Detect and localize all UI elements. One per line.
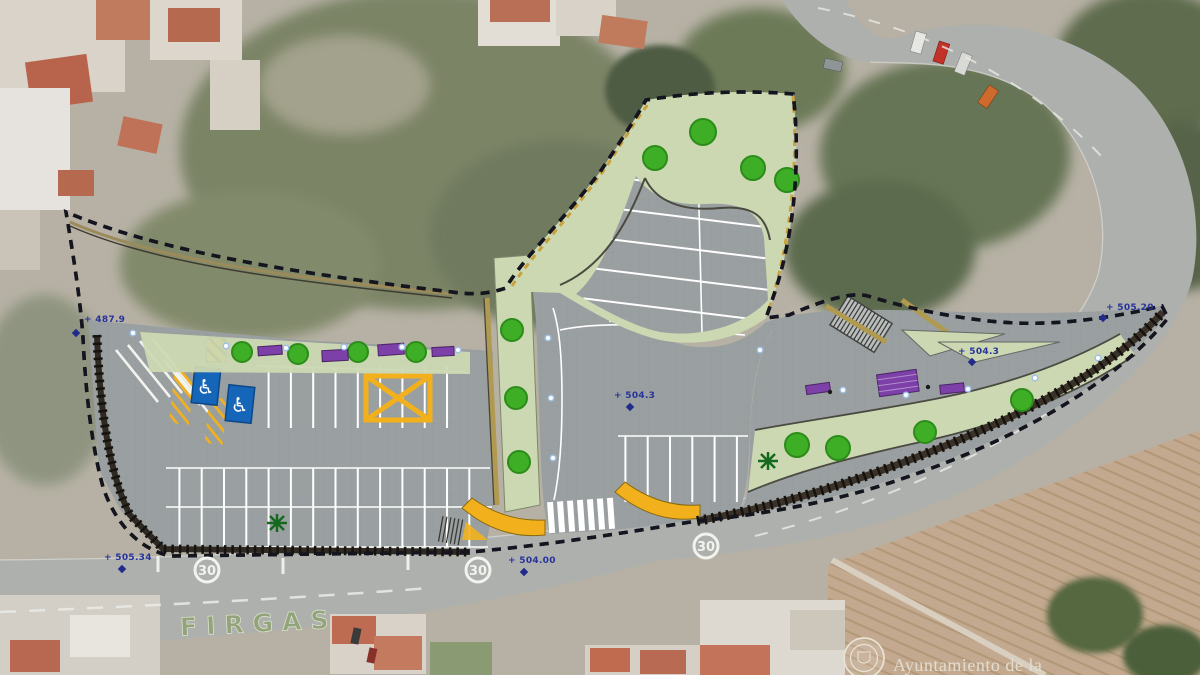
tree-icon	[914, 421, 936, 443]
building	[0, 210, 40, 270]
palm-icon	[267, 514, 287, 532]
speed-limit-text: 30	[198, 564, 216, 579]
bench-icon	[322, 349, 349, 361]
tree-icon	[288, 344, 308, 364]
tree-icon	[643, 146, 667, 170]
tree-icon	[1011, 389, 1033, 411]
building-roof	[700, 645, 770, 675]
elevation-text: + 504.00	[508, 556, 556, 566]
garden	[430, 642, 492, 675]
building-roof	[490, 0, 550, 22]
tree-icon	[232, 342, 252, 362]
building-roof	[58, 170, 94, 196]
bench-icon	[258, 345, 283, 356]
elevation-text: + 487.9	[84, 315, 125, 325]
palm-icon	[758, 452, 778, 470]
lamp-icon	[130, 330, 136, 336]
elevation-text: + 505.34	[104, 553, 152, 563]
lamp-icon	[840, 387, 846, 393]
tree-icon	[785, 433, 809, 457]
lamp-icon	[965, 386, 971, 392]
tree-icon	[505, 387, 527, 409]
accessible-parking-icon: ♿	[196, 374, 216, 400]
tree-icon	[690, 119, 716, 145]
parking-stalls-row	[168, 468, 488, 507]
building-roof	[590, 648, 630, 672]
vegetation-patch	[120, 190, 380, 340]
lamp-icon	[399, 344, 405, 350]
building-roof	[374, 636, 422, 670]
lamp-icon	[341, 344, 347, 350]
accessible-parking-stall: ♿	[191, 367, 221, 406]
elevation-text: + 504.3	[958, 347, 999, 357]
tree-icon	[406, 342, 426, 362]
elevation-text: + 504.3	[614, 391, 655, 401]
building	[210, 60, 260, 130]
lamp-icon	[757, 347, 763, 353]
footer-text: Ayuntamiento de la	[893, 655, 1042, 675]
lamp-icon	[903, 392, 909, 398]
tree-icon	[741, 156, 765, 180]
lamp-icon	[283, 345, 289, 351]
building-roof	[168, 8, 220, 42]
site-plan-screenshot: ♿ ♿	[0, 0, 1200, 675]
elevation-text: + 505.20	[1106, 303, 1154, 313]
bollard-icon	[828, 390, 832, 394]
bench-icon	[940, 383, 965, 394]
bollard-icon	[926, 385, 930, 389]
tree-icon	[826, 436, 850, 460]
speed-limit-text: 30	[697, 540, 715, 555]
building	[70, 615, 130, 657]
building-roof	[640, 650, 686, 674]
map-canvas: ♿ ♿	[0, 0, 1200, 675]
lamp-icon	[550, 455, 556, 461]
accessible-parking-icon: ♿	[230, 392, 250, 418]
lamp-icon	[545, 335, 551, 341]
building-roof	[790, 610, 845, 650]
building-roof	[10, 640, 60, 672]
parking-stalls-row	[168, 507, 488, 547]
lamp-icon	[1095, 355, 1101, 361]
tree-icon	[348, 342, 368, 362]
parking-stalls-row	[258, 366, 465, 428]
lamp-icon	[223, 343, 229, 349]
speed-limit-text: 30	[469, 564, 487, 579]
lamp-icon	[1032, 375, 1038, 381]
bench-icon	[432, 346, 454, 356]
tree-icon	[508, 451, 530, 473]
lamp-icon	[548, 395, 554, 401]
vegetation-patch	[260, 35, 430, 135]
tree-icon	[501, 319, 523, 341]
accessible-parking-stall: ♿	[225, 385, 255, 424]
lamp-icon	[455, 347, 461, 353]
